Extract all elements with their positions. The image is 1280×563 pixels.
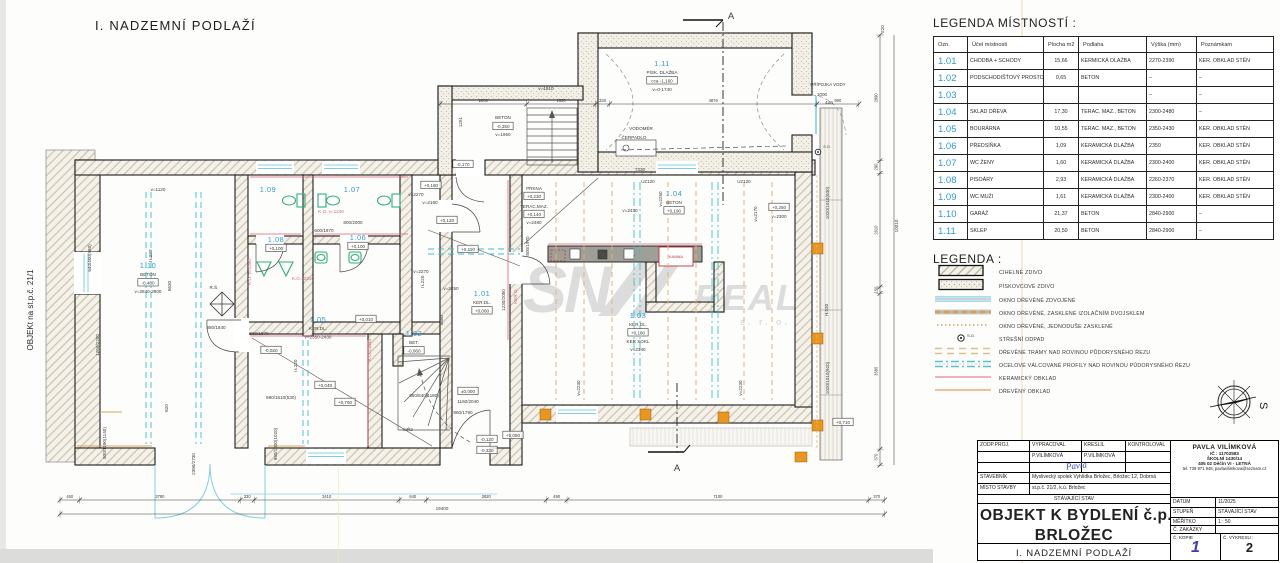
plan-annotation: +0,040 bbox=[318, 383, 333, 388]
plan-annotation: 220 bbox=[880, 25, 885, 33]
dimension-value: 2040 bbox=[479, 98, 489, 103]
tb-kopie-cell: Č. KOPIE 1 bbox=[1171, 534, 1221, 560]
plan-annotation: I Ł220 bbox=[420, 275, 425, 288]
drawing-number: 2 bbox=[1223, 540, 1276, 555]
plan-annotation: 1000 bbox=[817, 92, 828, 97]
room-number-cell: 1.01 bbox=[934, 53, 968, 70]
dimension-value: 640 bbox=[409, 494, 417, 499]
room-number-cell: 1.05 bbox=[934, 121, 968, 138]
room-floor-cell: TERAC. MAZ., BETON bbox=[1079, 121, 1147, 138]
room-floor-cell: KERAMICKÁ DLAŽBA bbox=[1079, 172, 1147, 189]
wooden-cladding-icon bbox=[933, 383, 999, 401]
paper-fold-line bbox=[338, 468, 339, 563]
dimension-value: 2610 bbox=[874, 225, 879, 235]
plan-annotation: PÍSK. DLAŽBA bbox=[647, 68, 679, 75]
plan-annotation: +0,140 bbox=[527, 212, 542, 217]
plan-annotation: +0,110 bbox=[461, 247, 475, 252]
plan-annotation: 1251 bbox=[458, 116, 463, 127]
room-purpose-cell bbox=[968, 87, 1044, 104]
plan-annotation: -0,330 bbox=[480, 448, 493, 453]
room-note-cell: – bbox=[1197, 87, 1274, 104]
dimension-value: 4876 bbox=[709, 98, 719, 103]
plan-annotation: A bbox=[728, 11, 735, 22]
plan-annotation: 1160/2040 bbox=[457, 399, 479, 404]
tb-datum-value: 11/2025 bbox=[1216, 498, 1278, 508]
plan-annotation: +0,050 bbox=[506, 433, 521, 438]
plan-annotation: I Ł220 bbox=[148, 249, 153, 262]
dimension-value: 490 bbox=[553, 494, 561, 499]
dimension-value: 3780 bbox=[155, 494, 165, 499]
plan-annotation: v=2170 bbox=[753, 206, 758, 222]
tb-main-title: OBJEKT K BYDLENÍ č.p. 12 BRLOŽEC bbox=[978, 504, 1171, 544]
floor-plan-svg: I. NADZEMNÍ PODLAŽÍ OBJEKt na st.p.č. 21… bbox=[0, 0, 930, 563]
room-purpose-cell: PODSCHODIŠŤOVÝ PROSTOR bbox=[968, 70, 1044, 87]
room-number: 1.11 bbox=[654, 59, 670, 68]
room-purpose-cell: GARÁŽ bbox=[968, 206, 1044, 223]
plan-annotation: v=1950 bbox=[495, 132, 511, 137]
plan-annotation: 980/1510(530) bbox=[266, 395, 296, 400]
tb-stavebnik-value: Myslivecký spolek Vyhlídka Brložec, Brlo… bbox=[1030, 473, 1171, 484]
room-number-cell: 1.02 bbox=[934, 70, 968, 87]
plan-annotation: 980/1000(1020) bbox=[273, 427, 278, 460]
room-number: 1.06 bbox=[350, 233, 366, 242]
plan-annotation: KAMNA bbox=[669, 254, 684, 259]
room-note-cell: KER. OBKLAD STĚN bbox=[1197, 121, 1274, 138]
room-note-cell: – bbox=[1197, 206, 1274, 223]
plan-annotation: +0,180 bbox=[424, 183, 439, 188]
plan-annotation: 800/1970 bbox=[525, 236, 530, 256]
room-note-cell: – bbox=[1197, 104, 1274, 121]
plan-annotation: v=2300 bbox=[771, 214, 787, 219]
plan-annotation: +0,120 bbox=[440, 218, 455, 223]
plan-annotation: 880/1840 bbox=[206, 325, 226, 330]
plan-annotation: +0,180 bbox=[631, 330, 646, 335]
room-purpose-cell: WC MUŽI bbox=[968, 189, 1044, 206]
dimension-value: 7100 bbox=[713, 494, 723, 499]
plan-annotation: U≠120 bbox=[737, 179, 751, 184]
dimension-value: 3580 bbox=[874, 366, 879, 376]
room-floor-cell: BETON bbox=[1079, 206, 1147, 223]
plan-annotation: 5630 bbox=[167, 280, 172, 291]
table-row: 1.07 WC ŽENY 1,60 KERAMICKÁ DLAŽBA 2300-… bbox=[934, 155, 1274, 172]
plan-annotation: PRKNA bbox=[526, 186, 543, 191]
table-row: 1.10 GARÁŽ 21,37 BETON 2840-2900 – bbox=[934, 206, 1274, 223]
plan-annotation: KER.DL. bbox=[473, 300, 491, 305]
table-row: 1.06 PŘEDSÍŇKA 1,09 KERAMICKÁ DLAŽBA 235… bbox=[934, 138, 1274, 155]
room-number: 1.07 bbox=[344, 185, 360, 194]
plan-annotation: v=2340 bbox=[630, 347, 646, 352]
tb-cell bbox=[978, 452, 1030, 463]
room-note-cell: KER. OBKLAD STĚN bbox=[1197, 189, 1274, 206]
tb-stupen-label: STUPEŇ bbox=[1171, 508, 1216, 518]
room-note-cell: KER. OBKLAD STĚN bbox=[1197, 138, 1274, 155]
dimension-value: 370 bbox=[873, 494, 881, 499]
room-purpose-cell: WC ŽENY bbox=[968, 155, 1044, 172]
plan-annotation: v=2430 bbox=[622, 208, 638, 213]
table-header-row: Ozn. Účel místnosti Plocha m2 Podlaha Vý… bbox=[934, 37, 1274, 53]
tb-zakazky-value bbox=[1216, 526, 1278, 534]
room-number: 1.05 bbox=[310, 315, 326, 324]
plan-annotation: 860/1870 bbox=[249, 331, 269, 336]
room-area-cell: 1,60 bbox=[1044, 155, 1079, 172]
plan-annotation: -0,350 bbox=[496, 124, 509, 129]
room-purpose-cell: SKLAD DŘEVA bbox=[968, 104, 1044, 121]
dimension-value: 290 bbox=[874, 163, 879, 171]
room-height-cell: – bbox=[1147, 87, 1197, 104]
plan-annotation: H.530 bbox=[824, 303, 829, 316]
legend-item: DŘEVĚNÝ OBKLAD bbox=[933, 385, 1233, 398]
room-height-cell: 2300-2480 bbox=[1147, 104, 1197, 121]
room-number-cell: 1.11 bbox=[934, 223, 968, 240]
room-number: 1.08 bbox=[268, 235, 284, 244]
room-height-cell: 2350-2430 bbox=[1147, 121, 1197, 138]
plan-annotation: TERAC.MAZ. bbox=[520, 204, 548, 209]
tb-architect: PAVLA VILÍMKOVÁ IČ : 11702583 ŠKOLNÍ 143… bbox=[1171, 441, 1278, 498]
room-area-cell: 1,09 bbox=[1044, 138, 1079, 155]
plan-annotation: -0,060 bbox=[407, 348, 420, 353]
drawing-subtitle: I. NADZEMNÍ PODLAŽÍ bbox=[980, 545, 1168, 559]
symbols-legend: CIHELNÉ ZDIVO PÍSKOVCOVÉ ZDIVO OKNO DŘEV… bbox=[933, 266, 1233, 398]
plan-annotation: VODOMĚR bbox=[629, 124, 653, 131]
tb-kontroloval-label: KONTROLOVAL bbox=[1126, 441, 1171, 452]
room-area-cell: 1,61 bbox=[1044, 189, 1079, 206]
plan-annotation: -0,120 bbox=[480, 437, 493, 442]
room-floor-cell: KERAMICKÁ DLAŽBA bbox=[1079, 155, 1147, 172]
tb-stupen-value: STÁVAJÍCÍ STAV bbox=[1216, 508, 1278, 518]
col-header-plocha: Plocha m2 bbox=[1044, 37, 1079, 53]
room-number-cell: 1.06 bbox=[934, 138, 968, 155]
plan-annotation: +0,100 bbox=[269, 246, 284, 251]
plan-annotation: K.O. v=1240 bbox=[318, 209, 344, 214]
tb-misto-label: MÍSTO STAVBY bbox=[978, 484, 1030, 495]
plan-annotation: cca -1,160 bbox=[651, 78, 673, 83]
plan-annotation: BETON bbox=[495, 115, 511, 120]
plan-annotation: KER.DL. bbox=[309, 326, 327, 331]
room-area-cell: 10,55 bbox=[1044, 121, 1079, 138]
tb-misto-value: st.p.č. 21/2, k.ú. Brložec bbox=[1030, 484, 1171, 495]
plan-annotation: 5680 bbox=[439, 314, 444, 325]
dimension-value: 330 bbox=[244, 494, 252, 499]
plan-title: I. NADZEMNÍ PODLAŽÍ bbox=[95, 18, 256, 33]
tb-subtitle-wrap: I. NADZEMNÍ PODLAŽÍ bbox=[978, 544, 1171, 560]
plan-annotation: 7330 bbox=[635, 167, 646, 172]
plan-annotation: KER.DL. bbox=[629, 322, 647, 327]
plan-annotation: v=1120 bbox=[151, 187, 166, 192]
room-area-cell: 0,65 bbox=[1044, 70, 1079, 87]
room-floor-cell bbox=[1079, 87, 1147, 104]
room-area-cell: 20,50 bbox=[1044, 223, 1079, 240]
plan-annotation: v=2270 bbox=[413, 269, 429, 274]
room-legend-title: LEGENDA MÍSTNOSTÍ : bbox=[933, 16, 1076, 30]
plan-annotation: BETON bbox=[140, 272, 156, 277]
table-row: 1.02 PODSCHODIŠŤOVÝ PROSTOR 0,65 BETON –… bbox=[934, 70, 1274, 87]
plan-annotation: 1020/1010(930) bbox=[825, 186, 830, 219]
room-number: 1.02 bbox=[406, 329, 422, 338]
tb-vypracoval-label: VYPRACOVAL bbox=[1030, 441, 1082, 452]
col-header-ozn: Ozn. bbox=[934, 37, 968, 53]
scan-edge-left bbox=[0, 0, 6, 563]
tb-cell bbox=[978, 463, 1030, 473]
plan-annotation: v=2840-2900 bbox=[135, 289, 162, 294]
plan-annotation: 820 bbox=[164, 404, 169, 412]
room-floor-cell: KERAMICKÁ DLAŽBA bbox=[1079, 189, 1147, 206]
plan-annotation: PŘÍPOJKA VODY bbox=[810, 82, 845, 87]
plan-annotation: +0,100 bbox=[351, 244, 366, 249]
plan-annotation: ±0,000 bbox=[461, 389, 475, 394]
col-header-ucel: Účel místnosti bbox=[968, 37, 1044, 53]
plan-annotation: v=2230 bbox=[738, 380, 743, 396]
dimension-value: 460 bbox=[66, 494, 74, 499]
plan-annotation: U≠120 bbox=[641, 179, 655, 184]
room-height-cell: 2300-2400 bbox=[1147, 189, 1197, 206]
room-number-cell: 1.09 bbox=[934, 189, 968, 206]
plan-annotation: S.O. bbox=[823, 145, 831, 149]
plan-annotation: -0,170 bbox=[456, 162, 469, 167]
room-number-cell: 1.08 bbox=[934, 172, 968, 189]
col-header-podlaha: Podlaha bbox=[1079, 37, 1147, 53]
room-number-cell: 1.03 bbox=[934, 87, 968, 104]
plan-annotation: R.Š. bbox=[210, 284, 219, 290]
scan-edge-bottom bbox=[0, 549, 933, 563]
plan-annotation: v=2270 bbox=[408, 192, 424, 197]
project-title-line2: BRLOŽEC bbox=[980, 525, 1168, 544]
plan-annotation: -0,020 bbox=[264, 348, 277, 353]
room-floor-cell: BETON bbox=[1079, 70, 1147, 87]
room-number: 1.01 bbox=[474, 289, 490, 298]
dimension-value: 990 bbox=[834, 98, 842, 103]
tb-zakazky-label: Č. ZAKÁZKY bbox=[1171, 526, 1216, 534]
table-row: 1.08 PISOÁRY 2,93 KERAMICKÁ DLAŽBA 2260-… bbox=[934, 172, 1274, 189]
room-height-cell: 2350 bbox=[1147, 138, 1197, 155]
plan-annotation: 10010 bbox=[894, 219, 899, 232]
room-purpose-cell: SKLEP bbox=[968, 223, 1044, 240]
tb-datum-label: DATUM bbox=[1171, 498, 1216, 508]
tb-kreslil-label: KRESLIL bbox=[1082, 441, 1126, 452]
plan-annotation: v=2160 bbox=[422, 200, 438, 205]
plan-annotation: v=2250 bbox=[658, 191, 663, 207]
drawing-sheet: I. NADZEMNÍ PODLAŽÍ OBJEKt na st.p.č. 21… bbox=[0, 0, 1280, 563]
col-header-vyska: Výška (mm) bbox=[1147, 37, 1197, 53]
room-number: 1.03 bbox=[630, 311, 646, 320]
table-row: 1.09 WC MUŽI 1,61 KERAMICKÁ DLAŽBA 2300-… bbox=[934, 189, 1274, 206]
room-height-cell: 2840-2900 bbox=[1147, 223, 1197, 240]
plan-annotation: v=2480 bbox=[526, 220, 542, 225]
dimension-value: 3410 bbox=[322, 494, 332, 499]
plan-annotation: KER O. bbox=[513, 288, 518, 304]
plan-annotation: 800/2000 bbox=[343, 220, 363, 225]
copy-number: 1 bbox=[1173, 540, 1218, 556]
room-area-cell: 15,66 bbox=[1044, 53, 1079, 70]
dimension-value: 330 bbox=[599, 98, 607, 103]
plan-annotation: v=1810 bbox=[538, 86, 554, 91]
tb-vykres-cell: Č. VÝKRESU : 2 bbox=[1221, 534, 1278, 560]
tb-stav: STÁVAJÍCÍ STAV bbox=[978, 495, 1171, 504]
plan-annotation: +0,060 bbox=[475, 308, 490, 313]
plan-annotation: BET. bbox=[409, 340, 419, 345]
plan-annotation: ČERPADLO bbox=[622, 134, 647, 140]
table-row: 1.11 SKLEP 20,50 BETON 2840-2900 – bbox=[934, 223, 1274, 240]
room-floor-cell: KERAMICKÁ DLAŽBA bbox=[1079, 138, 1147, 155]
plan-annotation: 19400 bbox=[436, 506, 449, 511]
plan-annotation: +0,710 bbox=[836, 420, 851, 425]
tb-meritko-label: MĚŘÍTKO bbox=[1171, 518, 1216, 526]
room-floor-cell: TERAC. MAZ., BETON bbox=[1079, 104, 1147, 121]
room-purpose-cell: CHODBA + SCHODY bbox=[968, 53, 1044, 70]
room-note-cell: – bbox=[1197, 223, 1274, 240]
roof-drain-symbol bbox=[815, 149, 821, 155]
plan-annotation: 600/1970 bbox=[314, 228, 334, 233]
plan-annotation: 650/840(1180) bbox=[409, 393, 439, 398]
room-note-cell: KER. OBKLAD STĚN bbox=[1197, 172, 1274, 189]
plan-annotation: BETON bbox=[666, 200, 682, 205]
room-note-cell: KER. OBKLAD STĚN bbox=[1197, 53, 1274, 70]
table-row: 1.04 SKLAD DŘEVA 17,30 TERAC. MAZ., BETO… bbox=[934, 104, 1274, 121]
plan-annotation: +0,230 bbox=[527, 194, 542, 199]
room-height-cell: 2260-2370 bbox=[1147, 172, 1197, 189]
plan-annotation: 860/1790 bbox=[453, 410, 473, 415]
architect-name: PAVLA VILÍMKOVÁ bbox=[1173, 444, 1276, 451]
room-height-cell: 2270-2390 bbox=[1147, 53, 1197, 70]
north-compass: S bbox=[1198, 370, 1280, 434]
project-title-line1: OBJEKT K BYDLENÍ č.p. 12 bbox=[980, 505, 1168, 525]
plan-annotation: +0,250 bbox=[772, 205, 787, 210]
room-note-cell: KER. OBKLAD STĚN bbox=[1197, 155, 1274, 172]
room-number-cell: 1.04 bbox=[934, 104, 968, 121]
title-block: ZODP.PROJ. VYPRACOVAL KRESLIL KONTROLOVA… bbox=[977, 440, 1279, 561]
plan-annotation: 640/400(980) bbox=[87, 244, 92, 272]
dimension-value: 370 bbox=[874, 453, 879, 461]
table-row: 1.01 CHODBA + SCHODY 15,66 KERMICKÁ DLAŽ… bbox=[934, 53, 1274, 70]
room-height-cell: – bbox=[1147, 70, 1197, 87]
plan-annotation: mŘ2 bbox=[403, 425, 413, 432]
room-area-cell: 21,37 bbox=[1044, 206, 1079, 223]
plan-annotation: v=0-1740 bbox=[652, 87, 672, 92]
plan-annotation: +0,760 bbox=[338, 400, 353, 405]
table-row: 1.05 BOURÁRNA 10,55 TERAC. MAZ., BETON 2… bbox=[934, 121, 1274, 138]
dimension-value: 150 bbox=[874, 286, 879, 294]
plan-annotation: I Ł220 bbox=[293, 359, 298, 372]
dimension-value: 1620 bbox=[557, 98, 567, 103]
room-area-cell bbox=[1044, 87, 1079, 104]
room-purpose-cell: PISOÁRY bbox=[968, 172, 1044, 189]
room-purpose-cell: BOURÁRNA bbox=[968, 121, 1044, 138]
dimension-value: 2890 bbox=[874, 93, 879, 103]
plan-annotation: 2390/2730 bbox=[191, 453, 196, 475]
room-purpose-cell: PŘEDSÍŇKA bbox=[968, 138, 1044, 155]
plan-annotation: +0,190 bbox=[667, 208, 682, 213]
architect-tel: tel. 739 971 948, pavlavilimkova@seznam.… bbox=[1173, 466, 1276, 471]
room-number: 1.09 bbox=[260, 185, 276, 194]
room-height-cell: 2840-2900 bbox=[1147, 206, 1197, 223]
room-floor-cell: BETON bbox=[1079, 223, 1147, 240]
neighbor-object-label: OBJEKt na st.p.č. 21/1 bbox=[26, 269, 35, 350]
plan-annotation: +0,010 bbox=[359, 317, 374, 322]
dimension-value: 2820 bbox=[482, 494, 492, 499]
tb-zodp-label: ZODP.PROJ. bbox=[978, 441, 1030, 452]
plan-annotation: K.O. v=1395 bbox=[247, 259, 252, 285]
plan-annotation: v=2250 bbox=[443, 286, 459, 291]
svg-text:S.O.: S.O. bbox=[967, 333, 975, 338]
room-number: 1.04 bbox=[666, 189, 682, 198]
plan-annotation: 1020/1010(920) bbox=[825, 361, 830, 394]
plan-annotation: A bbox=[674, 463, 681, 474]
tb-stavebnik-label: STAVEBNÍK bbox=[978, 473, 1030, 484]
room-number-cell: 1.07 bbox=[934, 155, 968, 172]
svg-text:s. r. o.: s. r. o. bbox=[740, 317, 790, 327]
plan-annotation: K.O.=1640 bbox=[367, 339, 372, 362]
room-area-cell: 2,93 bbox=[1044, 172, 1079, 189]
plan-annotation: K.O.=2310 bbox=[292, 276, 315, 281]
room-area-cell: 17,30 bbox=[1044, 104, 1079, 121]
plan-annotation: KER SOKL bbox=[627, 339, 650, 344]
room-note-cell: – bbox=[1197, 70, 1274, 87]
room-height-cell: 2300-2400 bbox=[1147, 155, 1197, 172]
col-header-pozn: Poznámkam bbox=[1197, 37, 1274, 53]
table-row: 1.03 – – bbox=[934, 87, 1274, 104]
room-number-cell: 1.10 bbox=[934, 206, 968, 223]
room-legend-table: Ozn. Účel místnosti Plocha m2 Podlaha Vý… bbox=[933, 36, 1274, 240]
compass-south-label: S bbox=[1257, 402, 1269, 409]
plan-annotation: 1230/2050 bbox=[501, 289, 506, 311]
room-floor-cell: KERMICKÁ DLAŽBA bbox=[1079, 53, 1147, 70]
tb-meritko-value: 1 : 50 bbox=[1216, 518, 1278, 526]
plan-annotation: v=2350-2430 bbox=[305, 334, 332, 339]
plan-annotation: v=2230 bbox=[576, 380, 581, 396]
plan-annotation: 1260/2200 bbox=[95, 334, 100, 356]
plan-annotation: 800/1190(1140) bbox=[102, 427, 107, 459]
plan-annotation: -0,480 bbox=[141, 280, 154, 285]
